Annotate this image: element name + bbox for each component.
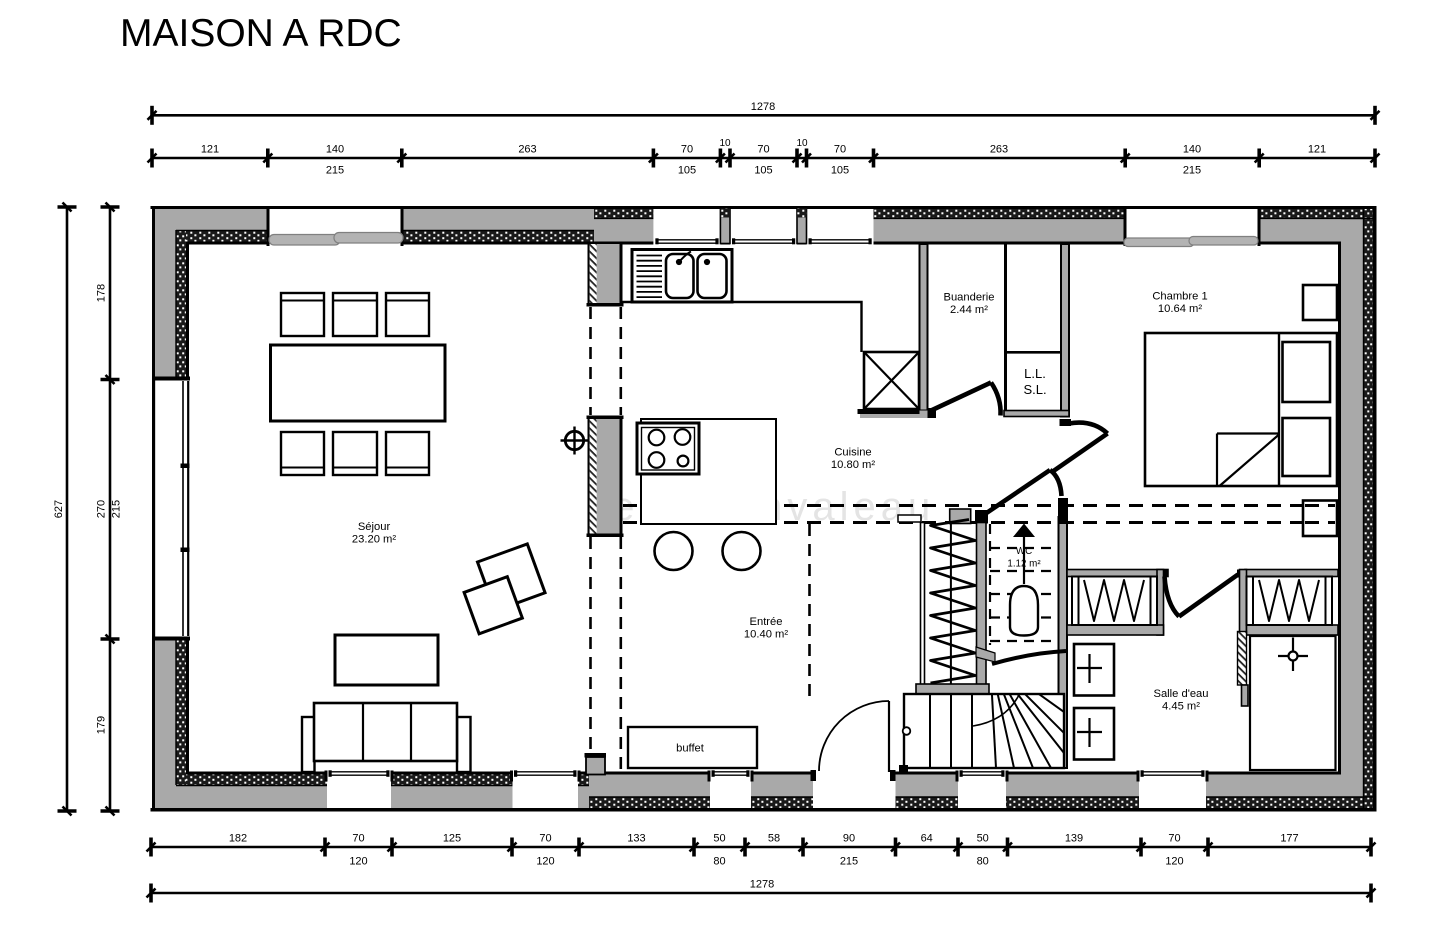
svg-text:Séjour: Séjour (358, 521, 391, 533)
svg-text:1278: 1278 (751, 101, 775, 113)
svg-text:215: 215 (111, 500, 123, 518)
svg-text:buffet: buffet (676, 743, 705, 755)
svg-text:105: 105 (678, 165, 696, 177)
svg-text:10.64 m²: 10.64 m² (1158, 303, 1202, 315)
svg-text:1278: 1278 (750, 879, 774, 891)
svg-text:139: 139 (1065, 833, 1083, 845)
svg-text:182: 182 (229, 833, 247, 845)
svg-text:23.20 m²: 23.20 m² (352, 534, 396, 546)
svg-text:178: 178 (96, 284, 108, 302)
svg-text:627: 627 (53, 500, 65, 518)
svg-text:70: 70 (1168, 833, 1180, 845)
svg-text:270: 270 (96, 500, 108, 518)
svg-text:Salle d'eau: Salle d'eau (1153, 688, 1208, 700)
svg-text:10.40 m²: 10.40 m² (744, 629, 788, 641)
svg-text:120: 120 (349, 856, 367, 868)
svg-text:L.L.: L.L. (1024, 366, 1046, 381)
svg-text:179: 179 (96, 716, 108, 734)
svg-text:70: 70 (352, 833, 364, 845)
svg-text:58: 58 (768, 833, 780, 845)
svg-text:50: 50 (713, 833, 725, 845)
svg-text:MAISON A RDC: MAISON A RDC (120, 12, 402, 55)
svg-text:105: 105 (754, 165, 772, 177)
svg-text:80: 80 (977, 856, 989, 868)
svg-text:263: 263 (518, 144, 536, 156)
svg-text:4.45 m²: 4.45 m² (1162, 701, 1200, 713)
svg-text:140: 140 (1183, 144, 1201, 156)
svg-text:120: 120 (536, 856, 554, 868)
svg-text:121: 121 (201, 144, 219, 156)
svg-text:263: 263 (990, 144, 1008, 156)
svg-text:WC: WC (1016, 546, 1032, 557)
svg-text:70: 70 (539, 833, 551, 845)
svg-text:S.L.: S.L. (1023, 382, 1046, 397)
svg-text:10: 10 (796, 138, 808, 149)
svg-text:215: 215 (326, 165, 344, 177)
svg-text:Chambre 1: Chambre 1 (1152, 291, 1207, 303)
svg-text:Buanderie: Buanderie (943, 292, 994, 304)
svg-text:Cuisine: Cuisine (834, 447, 871, 459)
svg-text:133: 133 (627, 833, 645, 845)
svg-text:215: 215 (840, 856, 858, 868)
svg-text:140: 140 (326, 144, 344, 156)
svg-text:120: 120 (1165, 856, 1183, 868)
svg-text:125: 125 (443, 833, 461, 845)
svg-text:50: 50 (977, 833, 989, 845)
svg-text:80: 80 (713, 856, 725, 868)
svg-text:70: 70 (834, 144, 846, 156)
svg-text:177: 177 (1280, 833, 1298, 845)
svg-text:10.80 m²: 10.80 m² (831, 459, 875, 471)
svg-text:70: 70 (681, 144, 693, 156)
svg-text:2.44 m²: 2.44 m² (950, 304, 988, 316)
svg-text:215: 215 (1183, 165, 1201, 177)
svg-text:121: 121 (1308, 144, 1326, 156)
svg-text:10: 10 (719, 138, 731, 149)
svg-text:1.12 m²: 1.12 m² (1007, 559, 1041, 570)
svg-text:64: 64 (921, 833, 933, 845)
svg-text:90: 90 (843, 833, 855, 845)
svg-text:70: 70 (757, 144, 769, 156)
svg-text:Entrée: Entrée (750, 616, 783, 628)
svg-text:105: 105 (831, 165, 849, 177)
